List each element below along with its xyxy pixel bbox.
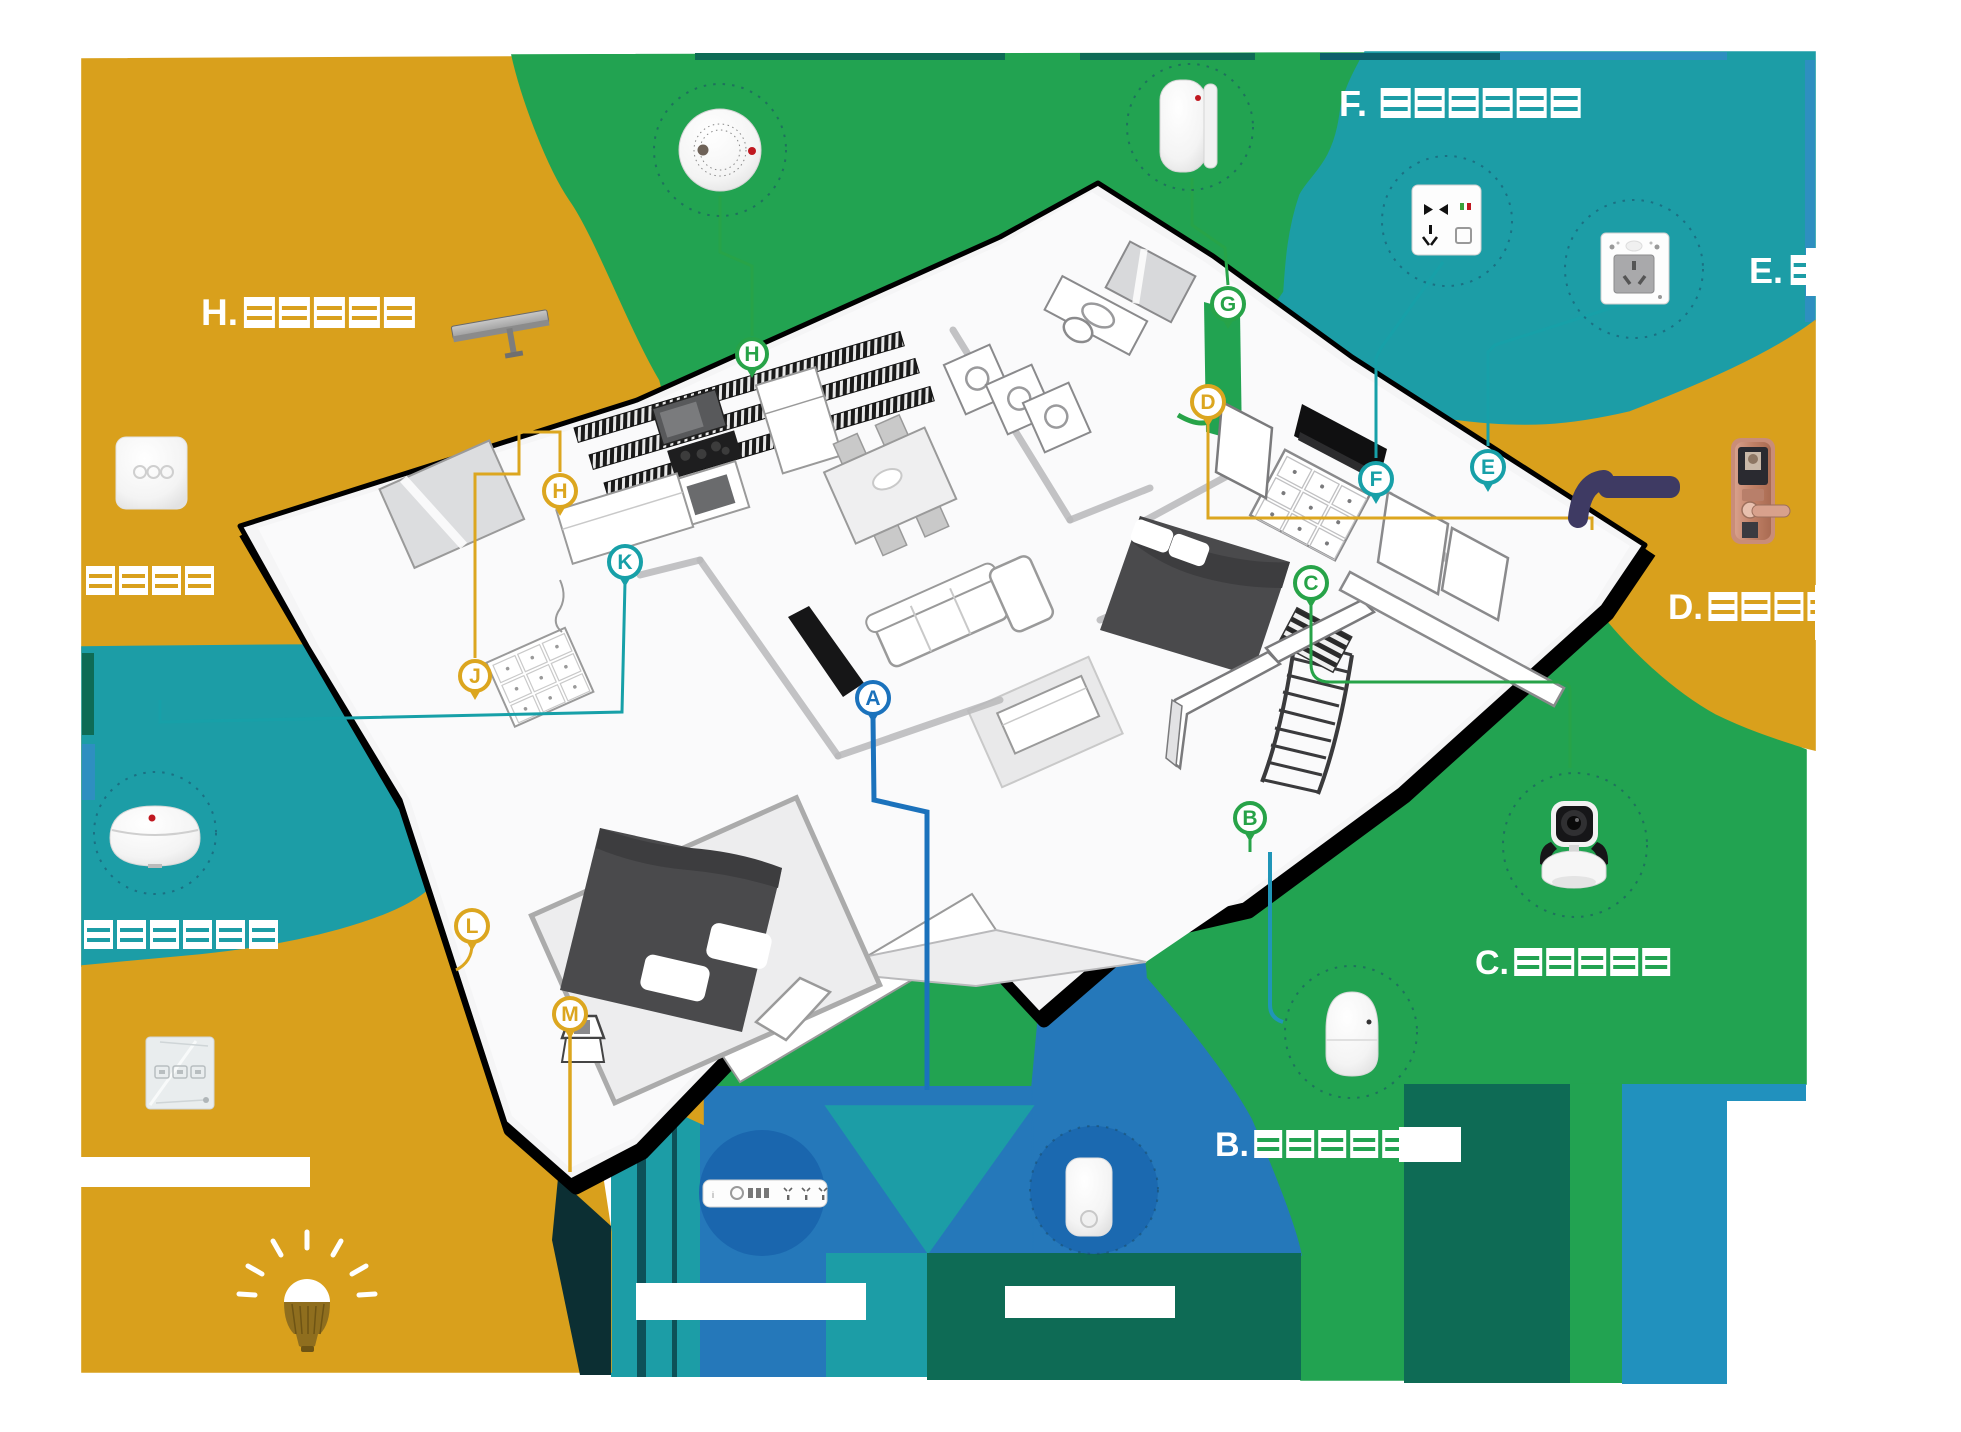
svg-text:B: B [1242, 807, 1257, 830]
svg-text:G: G [1220, 293, 1236, 316]
svg-text:F: F [1370, 468, 1383, 491]
svg-text:F.: F. [1339, 83, 1367, 124]
svg-text:i: i [712, 1190, 714, 1200]
svg-text:D: D [1200, 391, 1215, 414]
svg-text:L: L [466, 915, 479, 938]
svg-text:H.: H. [201, 292, 238, 333]
svg-text:B.: B. [1215, 1126, 1249, 1164]
svg-text:M: M [561, 1003, 579, 1026]
svg-text:H: H [552, 480, 567, 503]
svg-text:C.: C. [1475, 944, 1509, 982]
svg-text:J: J [469, 665, 481, 688]
svg-text:E: E [1481, 456, 1495, 479]
svg-text:H: H [744, 343, 759, 366]
svg-text:D.: D. [1668, 588, 1703, 627]
svg-text:K: K [617, 551, 632, 574]
svg-text:A: A [865, 687, 880, 710]
svg-text:C: C [1303, 572, 1318, 595]
svg-text:E.: E. [1749, 250, 1783, 291]
